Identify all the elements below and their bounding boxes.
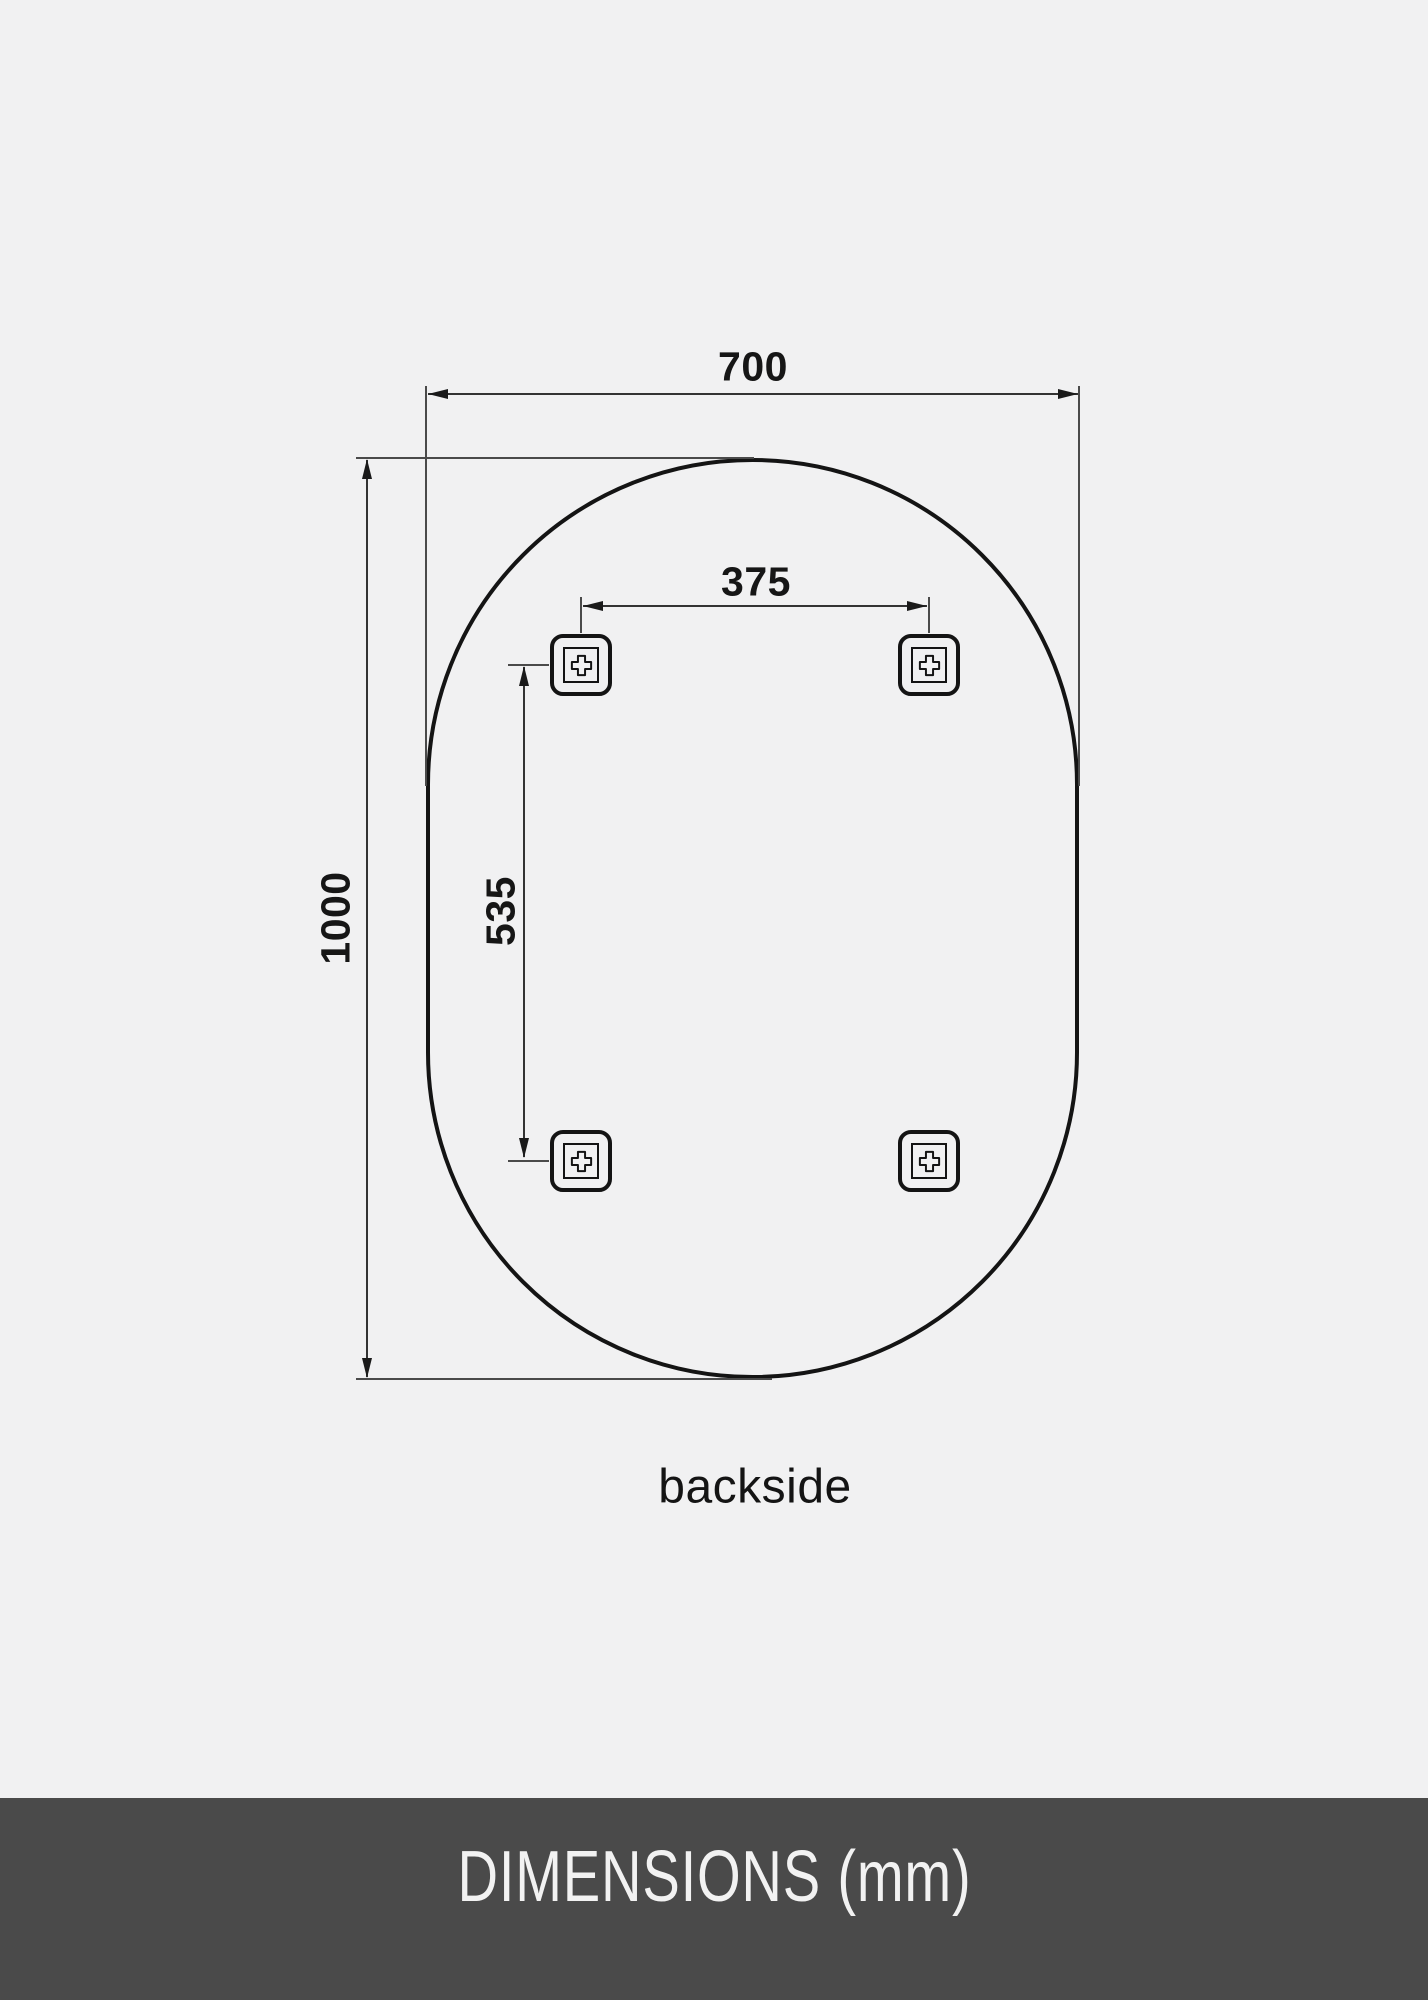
dim-375-tick-right	[928, 597, 930, 633]
bracket-inner-square	[563, 647, 599, 683]
footer-title: DIMENSIONS (mm)	[457, 1836, 971, 1918]
dim-1000-arrow-up	[362, 459, 372, 479]
dim-535-label: 535	[478, 876, 525, 946]
dim-700-extension-right	[1078, 386, 1080, 786]
dim-1000-extension-top	[356, 457, 754, 459]
dim-375-arrow-right	[907, 601, 927, 611]
mounting-bracket-top-left	[550, 634, 612, 696]
bracket-inner-square	[911, 647, 947, 683]
screw-cross-icon	[918, 654, 941, 677]
dim-1000-line	[366, 460, 368, 1377]
view-label: backside	[658, 1460, 851, 1515]
dim-535-arrow-up	[519, 666, 529, 686]
dim-1000-extension-bottom	[356, 1378, 772, 1380]
dim-375-label: 375	[721, 559, 791, 606]
dim-700-arrow-left	[428, 389, 448, 399]
dim-535-tick-top	[508, 664, 549, 666]
footer-bar: DIMENSIONS (mm)	[0, 1798, 1428, 2000]
screw-cross-icon	[918, 1150, 941, 1173]
mounting-bracket-bottom-right	[898, 1130, 960, 1192]
dim-700-extension-left	[425, 386, 427, 786]
mounting-bracket-bottom-left	[550, 1130, 612, 1192]
dim-535-tick-bottom	[508, 1160, 549, 1162]
dim-700-arrow-right	[1058, 389, 1078, 399]
screw-cross-icon	[570, 654, 593, 677]
dim-375-tick-left	[580, 597, 582, 633]
dim-1000-label: 1000	[313, 871, 360, 964]
mounting-bracket-top-right	[898, 634, 960, 696]
dim-1000-arrow-down	[362, 1358, 372, 1378]
screw-cross-icon	[570, 1150, 593, 1173]
dim-700-line	[428, 393, 1078, 395]
bracket-inner-square	[563, 1143, 599, 1179]
dim-375-arrow-left	[583, 601, 603, 611]
dim-700-label: 700	[718, 344, 788, 391]
bracket-inner-square	[911, 1143, 947, 1179]
dim-535-arrow-down	[519, 1138, 529, 1158]
